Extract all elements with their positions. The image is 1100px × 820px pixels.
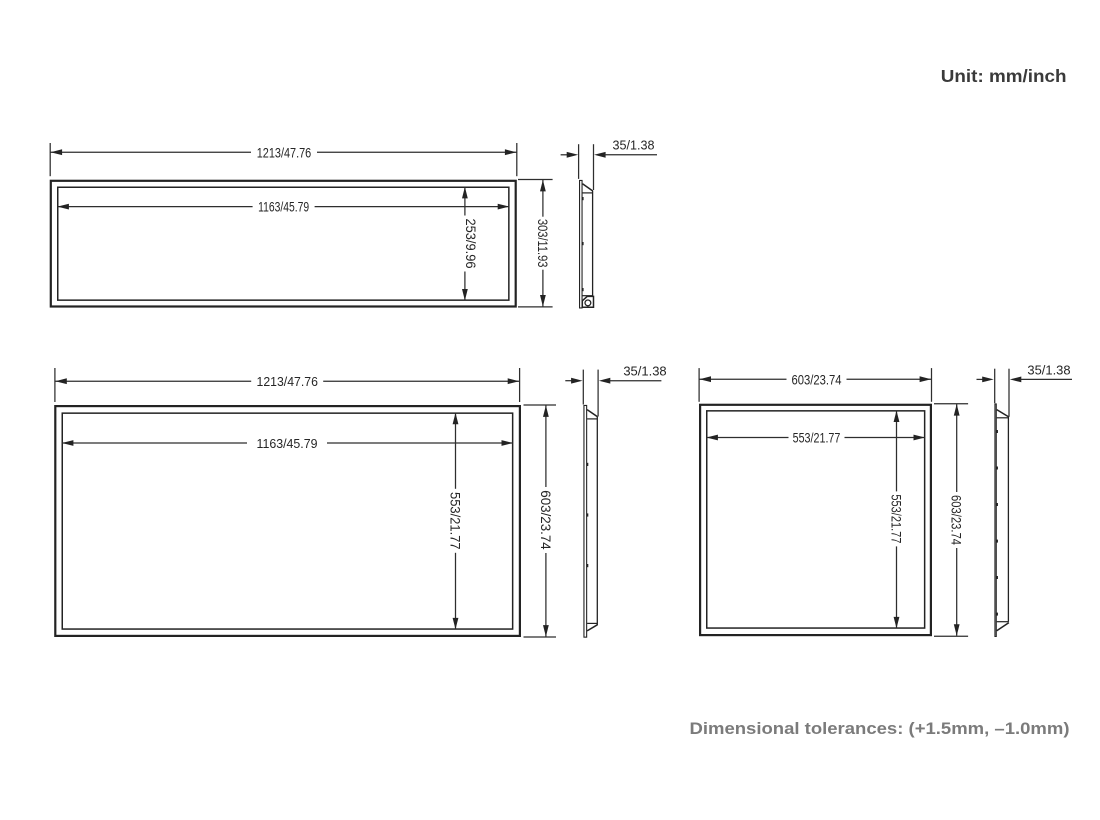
svg-text:253/9.96: 253/9.96 [463, 219, 479, 269]
svg-text:Unit: mm/inch: Unit: mm/inch [941, 66, 1067, 86]
svg-text:603/23.74: 603/23.74 [949, 495, 965, 545]
svg-text:553/21.77: 553/21.77 [447, 492, 462, 550]
svg-text:1163/45.79: 1163/45.79 [258, 199, 309, 215]
svg-text:1213/47.76: 1213/47.76 [257, 144, 312, 160]
svg-text:1213/47.76: 1213/47.76 [257, 374, 318, 389]
svg-text:553/21.77: 553/21.77 [793, 430, 841, 446]
svg-text:303/11.93: 303/11.93 [535, 219, 551, 268]
svg-text:35/1.38: 35/1.38 [623, 364, 666, 379]
svg-text:603/23.74: 603/23.74 [792, 371, 842, 387]
svg-text:553/21.77: 553/21.77 [888, 494, 904, 543]
svg-text:35/1.38: 35/1.38 [1027, 362, 1070, 377]
svg-text:Dimensional tolerances: (+1.5m: Dimensional tolerances: (+1.5mm, –1.0mm) [690, 720, 1070, 738]
svg-text:1163/45.79: 1163/45.79 [257, 436, 318, 451]
svg-text:603/23.74: 603/23.74 [538, 490, 553, 550]
svg-text:35/1.38: 35/1.38 [613, 138, 655, 153]
